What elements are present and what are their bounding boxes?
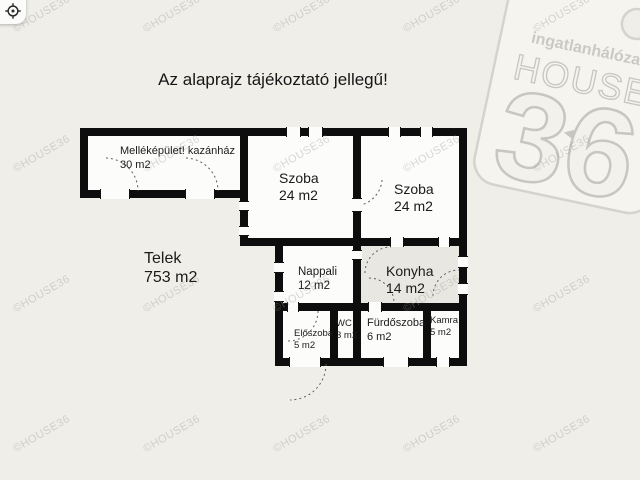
window-gap bbox=[383, 357, 409, 367]
logo-number-label: 36 bbox=[484, 63, 640, 228]
label-nappali: Nappali 12 m2 bbox=[298, 265, 337, 293]
room-area: 24 m2 bbox=[279, 187, 319, 204]
label-furdoszoba: Fürdőszoba 6 m2 bbox=[367, 316, 425, 344]
room-name: WC bbox=[336, 318, 357, 330]
window-gap bbox=[438, 237, 450, 247]
room-name: Előszoba bbox=[294, 328, 333, 340]
watermark-text: ©HOUSE36 bbox=[141, 413, 202, 455]
window-gap bbox=[274, 291, 284, 302]
room-area: 30 m2 bbox=[120, 158, 235, 172]
door-arc bbox=[290, 364, 326, 400]
window-gap bbox=[308, 127, 323, 137]
watermark-text: ©HOUSE36 bbox=[11, 273, 72, 315]
locate-button[interactable] bbox=[0, 0, 26, 24]
room-area: 6 m2 bbox=[367, 330, 425, 344]
house36-tag-icon: ingatlanhálózat HOUSE 36 ◄ bbox=[440, 0, 640, 249]
window-gap bbox=[436, 357, 450, 367]
door-gap bbox=[352, 198, 362, 212]
watermark-text: ©HOUSE36 bbox=[531, 413, 592, 455]
label-telek: Telek 753 m2 bbox=[144, 249, 197, 287]
watermark-text: ©HOUSE36 bbox=[11, 413, 72, 455]
floor-plan-page: ©HOUSE36 ©HOUSE36 ©HOUSE36 ©HOUSE36 ©HOU… bbox=[0, 0, 640, 480]
label-konyha: Konyha 14 m2 bbox=[386, 263, 433, 297]
target-icon bbox=[4, 2, 22, 20]
room-area: 24 m2 bbox=[394, 198, 434, 215]
label-outbuilding: Melléképület! kazánház 30 m2 bbox=[120, 144, 235, 172]
room-name: Melléképület! kazánház bbox=[120, 144, 235, 158]
room-name: Szoba bbox=[279, 170, 319, 187]
wall-right bbox=[459, 136, 467, 366]
label-wc: WC 3 m2 bbox=[336, 318, 357, 342]
wall-outbuilding-left bbox=[80, 136, 88, 190]
door-gap bbox=[185, 189, 215, 199]
page-title: Az alaprajz tájékoztató jellegű! bbox=[113, 70, 433, 90]
watermark-text: ©HOUSE36 bbox=[271, 0, 332, 35]
watermark-text: ©HOUSE36 bbox=[531, 273, 592, 315]
window-gap bbox=[239, 226, 249, 236]
door-gap bbox=[287, 302, 299, 312]
label-eloszoba: Előszoba 5 m2 bbox=[294, 328, 333, 352]
window-gap bbox=[239, 201, 249, 211]
room-name: Nappali bbox=[298, 265, 337, 279]
entrance-door-gap bbox=[289, 357, 321, 367]
room-name: Fürdőszoba bbox=[367, 316, 425, 330]
house36-logo: ingatlanhálózat HOUSE 36 ◄ bbox=[439, 0, 640, 254]
room-name: Szoba bbox=[394, 181, 434, 198]
room-area: 5 m2 bbox=[430, 327, 458, 339]
room-area: 14 m2 bbox=[386, 280, 433, 297]
door-gap bbox=[100, 189, 130, 199]
plot-area: 753 m2 bbox=[144, 268, 197, 287]
window-gap bbox=[458, 256, 468, 268]
watermark-text: ©HOUSE36 bbox=[11, 133, 72, 175]
window-gap bbox=[274, 262, 284, 273]
watermark-text: ©HOUSE36 bbox=[141, 0, 202, 35]
room-area: 12 m2 bbox=[298, 279, 337, 293]
door-gap bbox=[458, 283, 468, 295]
door-gap bbox=[390, 237, 404, 247]
watermark-text: ©HOUSE36 bbox=[271, 413, 332, 455]
door-gap bbox=[368, 302, 382, 312]
door-gap bbox=[352, 250, 362, 260]
room-name: Konyha bbox=[386, 263, 433, 280]
window-gap bbox=[420, 127, 433, 137]
room-name: Kamra bbox=[430, 315, 458, 327]
room-area: 5 m2 bbox=[294, 340, 333, 352]
window-gap bbox=[388, 127, 401, 137]
watermark-text: ©HOUSE36 bbox=[401, 413, 462, 455]
watermark-text: ©HOUSE36 bbox=[401, 0, 462, 35]
plot-name: Telek bbox=[144, 249, 197, 268]
window-gap bbox=[286, 127, 301, 137]
label-szoba-2: Szoba 24 m2 bbox=[394, 181, 434, 215]
label-kamra: Kamra 5 m2 bbox=[430, 315, 458, 339]
label-szoba-1: Szoba 24 m2 bbox=[279, 170, 319, 204]
room-area: 3 m2 bbox=[336, 330, 357, 342]
wall-top bbox=[80, 128, 467, 136]
